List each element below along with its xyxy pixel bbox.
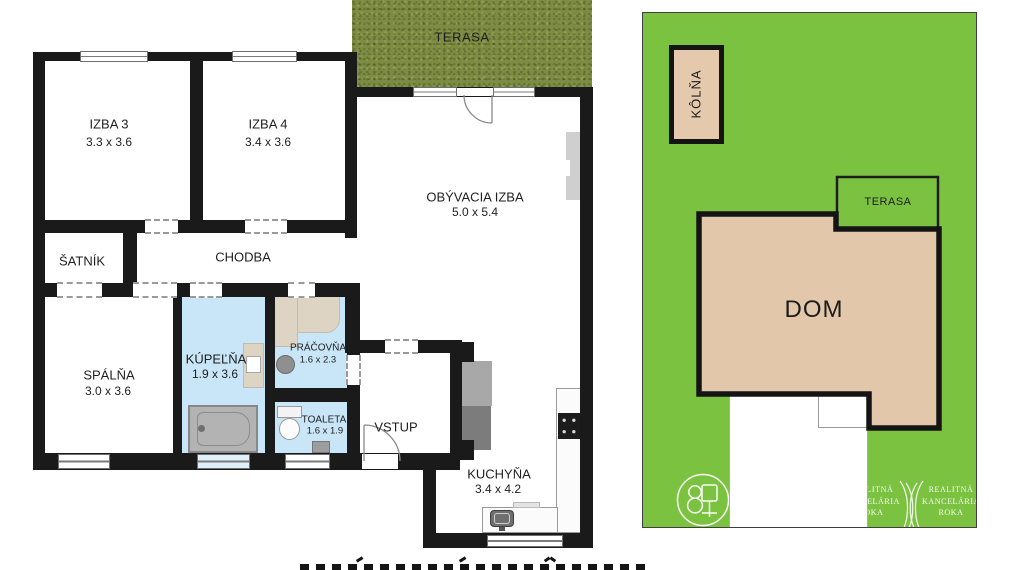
room-label-satnik: ŠATNÍK <box>59 254 105 269</box>
window <box>493 87 535 97</box>
watermark-line: ROKA <box>911 507 977 519</box>
toilet-bowl <box>279 418 300 440</box>
room-label-izba3: IZBA 3 <box>89 117 128 132</box>
shed-label: KÔLŇA <box>689 69 704 118</box>
room-dims-toaleta: 1.6 x 1.9 <box>307 426 343 437</box>
wall <box>33 220 357 233</box>
room-label-chodba: CHODBA <box>215 250 271 265</box>
cropped-caption-accent <box>356 556 363 562</box>
room-dims-izba3: 3.3 x 3.6 <box>86 135 132 149</box>
window <box>232 51 297 62</box>
house-label: DOM <box>785 296 844 324</box>
room-dims-obyvacia-izba: 5.0 x 5.4 <box>452 205 498 219</box>
stove <box>558 413 580 439</box>
room-label-pracovna: PRÁČOVŇA <box>290 343 346 354</box>
livingroom-wardrobe-notch <box>566 160 570 176</box>
toilet-tank <box>277 406 302 418</box>
site-plan-lot: REALITNÁ KANCELÁRIA ROKA REALITNÁ KANCEL… <box>642 12 977 528</box>
wall <box>345 52 357 238</box>
door-opening <box>190 282 222 298</box>
door-opening <box>245 219 287 234</box>
door-opening <box>346 355 361 385</box>
door-opening <box>145 219 178 234</box>
window <box>413 87 457 97</box>
room-label-vstup: VSTUP <box>374 420 417 435</box>
roka-logo-watermark <box>674 472 732 528</box>
terrace-label: TERASA <box>434 30 489 45</box>
cropped-caption-accent <box>550 557 556 562</box>
bathtub-faucet <box>198 425 205 432</box>
toilet-sink <box>312 441 330 453</box>
room-dims-pracovna: 1.6 x 2.3 <box>300 355 336 366</box>
kitchen-counter-item <box>513 502 540 508</box>
wall <box>33 52 45 470</box>
wall <box>580 87 593 548</box>
window <box>58 454 110 469</box>
room-dims-kuchyna: 3.4 x 4.2 <box>475 482 521 496</box>
room-label-kupelna: KÚPEĽŇA <box>186 352 247 367</box>
entrance-door-gap <box>362 454 398 469</box>
wall <box>265 388 360 402</box>
room-label-izba4: IZBA 4 <box>248 117 287 132</box>
wall <box>190 52 203 224</box>
wall <box>462 342 474 362</box>
watermark-line: KANCELÁRIA <box>911 496 977 508</box>
site-terrace-label: TERASA <box>864 196 911 208</box>
wall <box>450 340 462 460</box>
door-opening <box>385 339 418 354</box>
room-label-spalna: SPÁLŇA <box>83 368 134 383</box>
window <box>285 454 330 469</box>
kitchen-counter-right <box>556 388 581 533</box>
window <box>197 454 250 469</box>
room-label-toaleta: TOALETA <box>302 415 347 426</box>
kitchen-sink-basin <box>494 513 510 524</box>
driveway-pad <box>818 394 868 428</box>
door-opening <box>57 282 102 298</box>
wall <box>265 283 275 455</box>
kitchen-sink-tap <box>499 527 505 531</box>
room-label-obyvacia-izba: OBÝVACIA IZBA <box>426 190 523 205</box>
cropped-caption-accent <box>459 556 466 562</box>
bathroom-sink <box>246 356 261 373</box>
window <box>487 535 563 547</box>
watermark-line: REALITNÁ <box>911 484 977 496</box>
entry-closet-light <box>461 361 492 406</box>
room-label-kuchyna: KUCHYŇA <box>467 467 531 482</box>
wall <box>173 283 182 453</box>
window <box>80 51 148 62</box>
watermark-text: REALITNÁ KANCELÁRIA ROKA <box>911 484 977 519</box>
room-dims-kupelna: 1.9 x 3.6 <box>192 367 238 381</box>
room-dims-izba4: 3.4 x 3.6 <box>245 135 291 149</box>
door-opening <box>288 282 315 298</box>
terrace-door-gap <box>457 88 493 96</box>
cropped-caption-text <box>300 564 645 570</box>
hall-living-passage <box>345 238 357 283</box>
room-dims-spalna: 3.0 x 3.6 <box>85 384 131 398</box>
wall <box>462 440 474 460</box>
floorplan-page: TERASA IZBA 3 3.3 x 3.6 IZBA 4 3.4 x 3.6… <box>0 0 1011 570</box>
door-opening <box>133 282 177 298</box>
washing-machine <box>276 355 295 374</box>
